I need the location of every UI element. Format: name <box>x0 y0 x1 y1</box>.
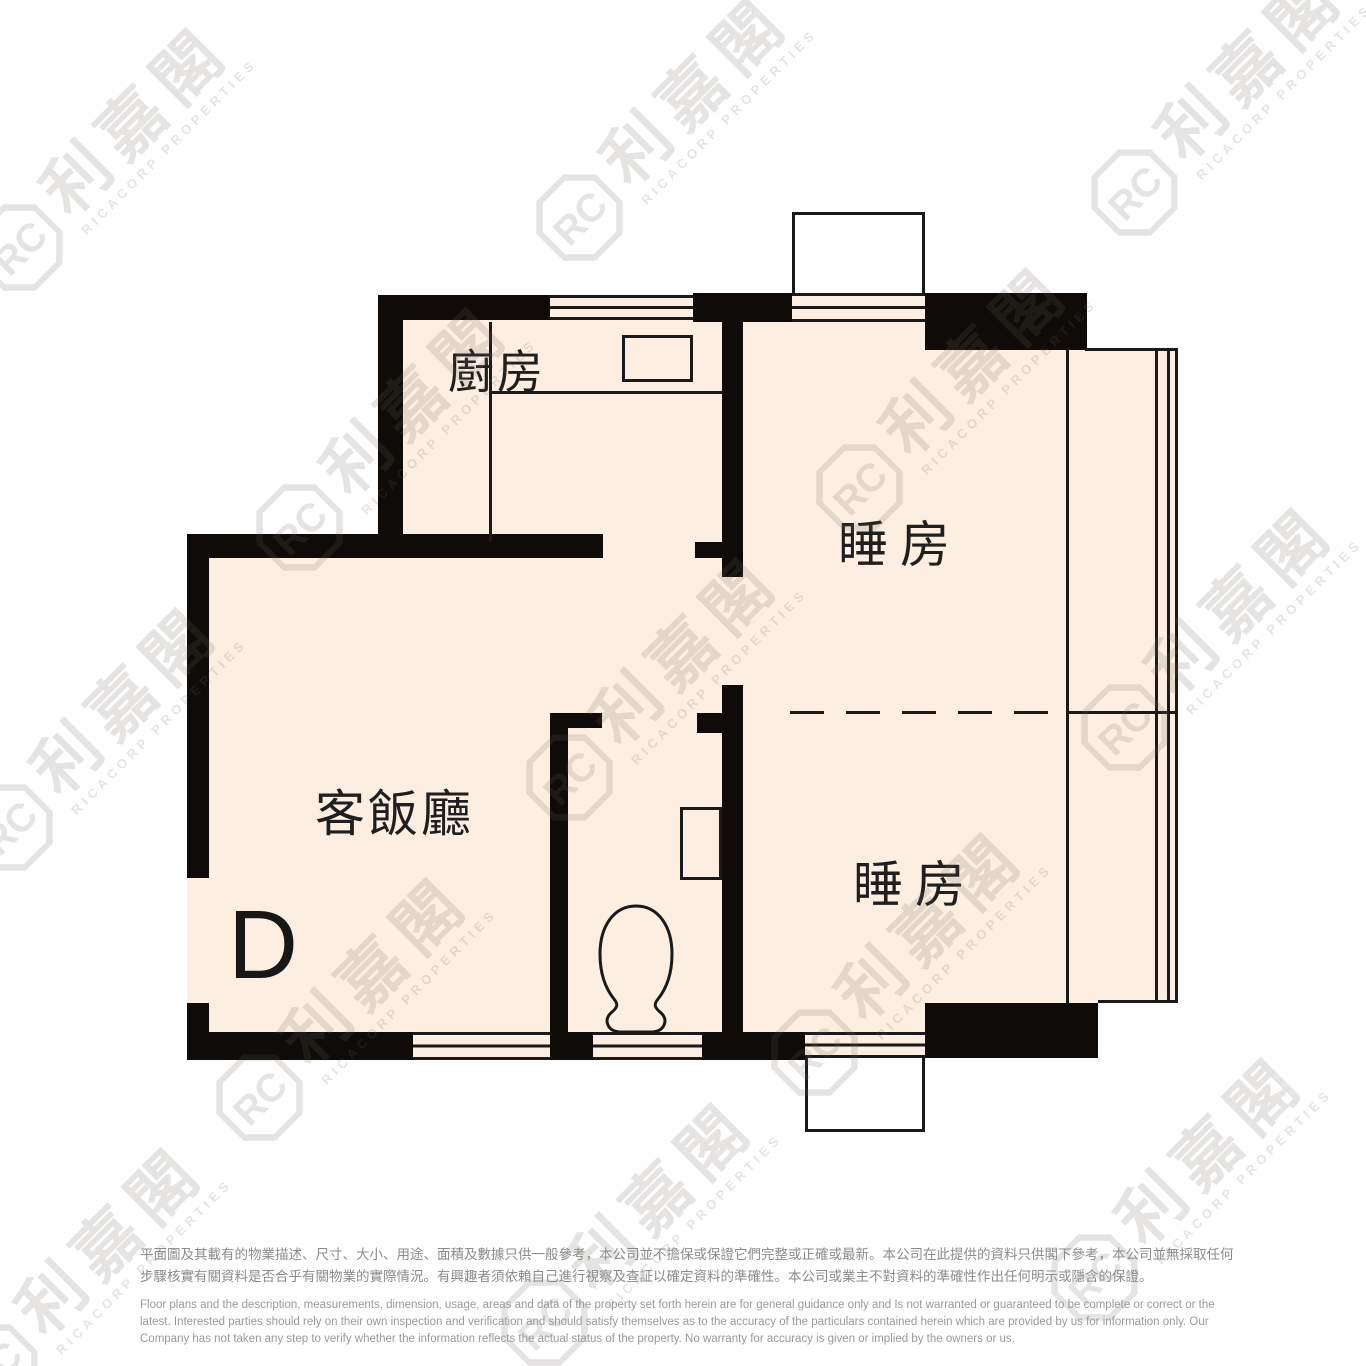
watermark: RC 利嘉閣RICACORP PROPERTIES <box>520 0 820 277</box>
ricacorp-logo-icon: RC <box>0 768 69 887</box>
floor-plan-page: 廚房 睡房 睡房 客飯廳 D RC 利嘉閣RICACORP PROPERTIES… <box>0 0 1366 1366</box>
svg-text:RC: RC <box>545 183 616 254</box>
svg-text:RC: RC <box>0 1333 31 1366</box>
wall-top-center <box>693 293 792 322</box>
wall-left-upper <box>187 534 209 878</box>
right-window-outer-edge <box>1175 348 1178 1003</box>
wall-bathroom-top-left-stub <box>550 713 602 728</box>
disclaimer-english: Floor plans and the description, measure… <box>140 1297 1238 1349</box>
ricacorp-logo-icon: RC <box>520 158 639 277</box>
ricacorp-logo-icon: RC <box>1075 133 1194 252</box>
bedroom-bottom-label: 睡房 <box>853 845 977 917</box>
kitchen-label: 廚房 <box>448 336 546 402</box>
wall-bottom-center <box>702 1032 805 1060</box>
wall-kitchen-top <box>378 295 550 320</box>
bedrooms-floor-area <box>743 293 1066 1058</box>
bottom-bay-window <box>805 1055 925 1132</box>
right-window-pane-line-1 <box>1155 351 1158 1001</box>
living-dining-label: 客飯廳 <box>315 774 474 846</box>
wall-block-top-right <box>925 293 1087 350</box>
ricacorp-logo-icon: RC <box>0 188 79 307</box>
right-window-bottom-edge <box>1098 1000 1178 1003</box>
wall-corridor-stub <box>695 542 722 558</box>
bathroom-window <box>593 1032 702 1060</box>
living-room-window <box>413 1032 550 1060</box>
wall-bathroom-top-right-stub <box>697 713 722 733</box>
watermark: RC 利嘉閣RICACORP PROPERTIES <box>1075 0 1366 252</box>
wall-bottom-left <box>187 1032 413 1060</box>
disclaimer-chinese: 平面圖及其載有的物業描述、尺寸、大小、用途、面積及數據只供一般參考，本公司並不擔… <box>140 1244 1238 1288</box>
wall-bedroom-divider-upper <box>722 320 743 577</box>
dashed-partition-line <box>790 711 1066 714</box>
top-bay-window-sill <box>792 293 925 322</box>
wall-kitchen-left <box>378 295 403 558</box>
wall-bathroom-left <box>550 713 568 1060</box>
right-window-bay-floor <box>1066 348 1178 1003</box>
right-window-top-edge <box>1085 348 1178 351</box>
wash-basin <box>680 807 722 880</box>
right-window-inner-line <box>1066 348 1069 1003</box>
svg-text:RC: RC <box>0 793 46 864</box>
svg-text:RC: RC <box>1100 158 1171 229</box>
disclaimer: 平面圖及其載有的物業描述、尺寸、大小、用途、面積及數據只供一般參考，本公司並不擔… <box>140 1244 1238 1348</box>
bedroom-top-label: 睡房 <box>838 505 962 577</box>
kitchen-appliance <box>622 335 693 382</box>
ricacorp-logo-icon: RC <box>0 1308 54 1366</box>
partition-line-window-bay <box>1066 711 1178 714</box>
svg-text:RC: RC <box>225 1063 296 1134</box>
unit-label: D <box>228 896 298 993</box>
wall-bottom-bath-left <box>568 1032 593 1060</box>
toilet-icon <box>596 902 676 1036</box>
svg-text:RC: RC <box>0 213 56 284</box>
wall-block-bottom-right <box>925 1003 1098 1058</box>
watermark: RC 利嘉閣RICACORP PROPERTIES <box>0 7 260 307</box>
wall-living-top <box>187 534 603 558</box>
right-window-pane-line-2 <box>1167 351 1170 1001</box>
kitchen-window <box>550 295 693 320</box>
top-bay-window <box>792 212 925 296</box>
wall-bathroom-right <box>722 685 743 1035</box>
